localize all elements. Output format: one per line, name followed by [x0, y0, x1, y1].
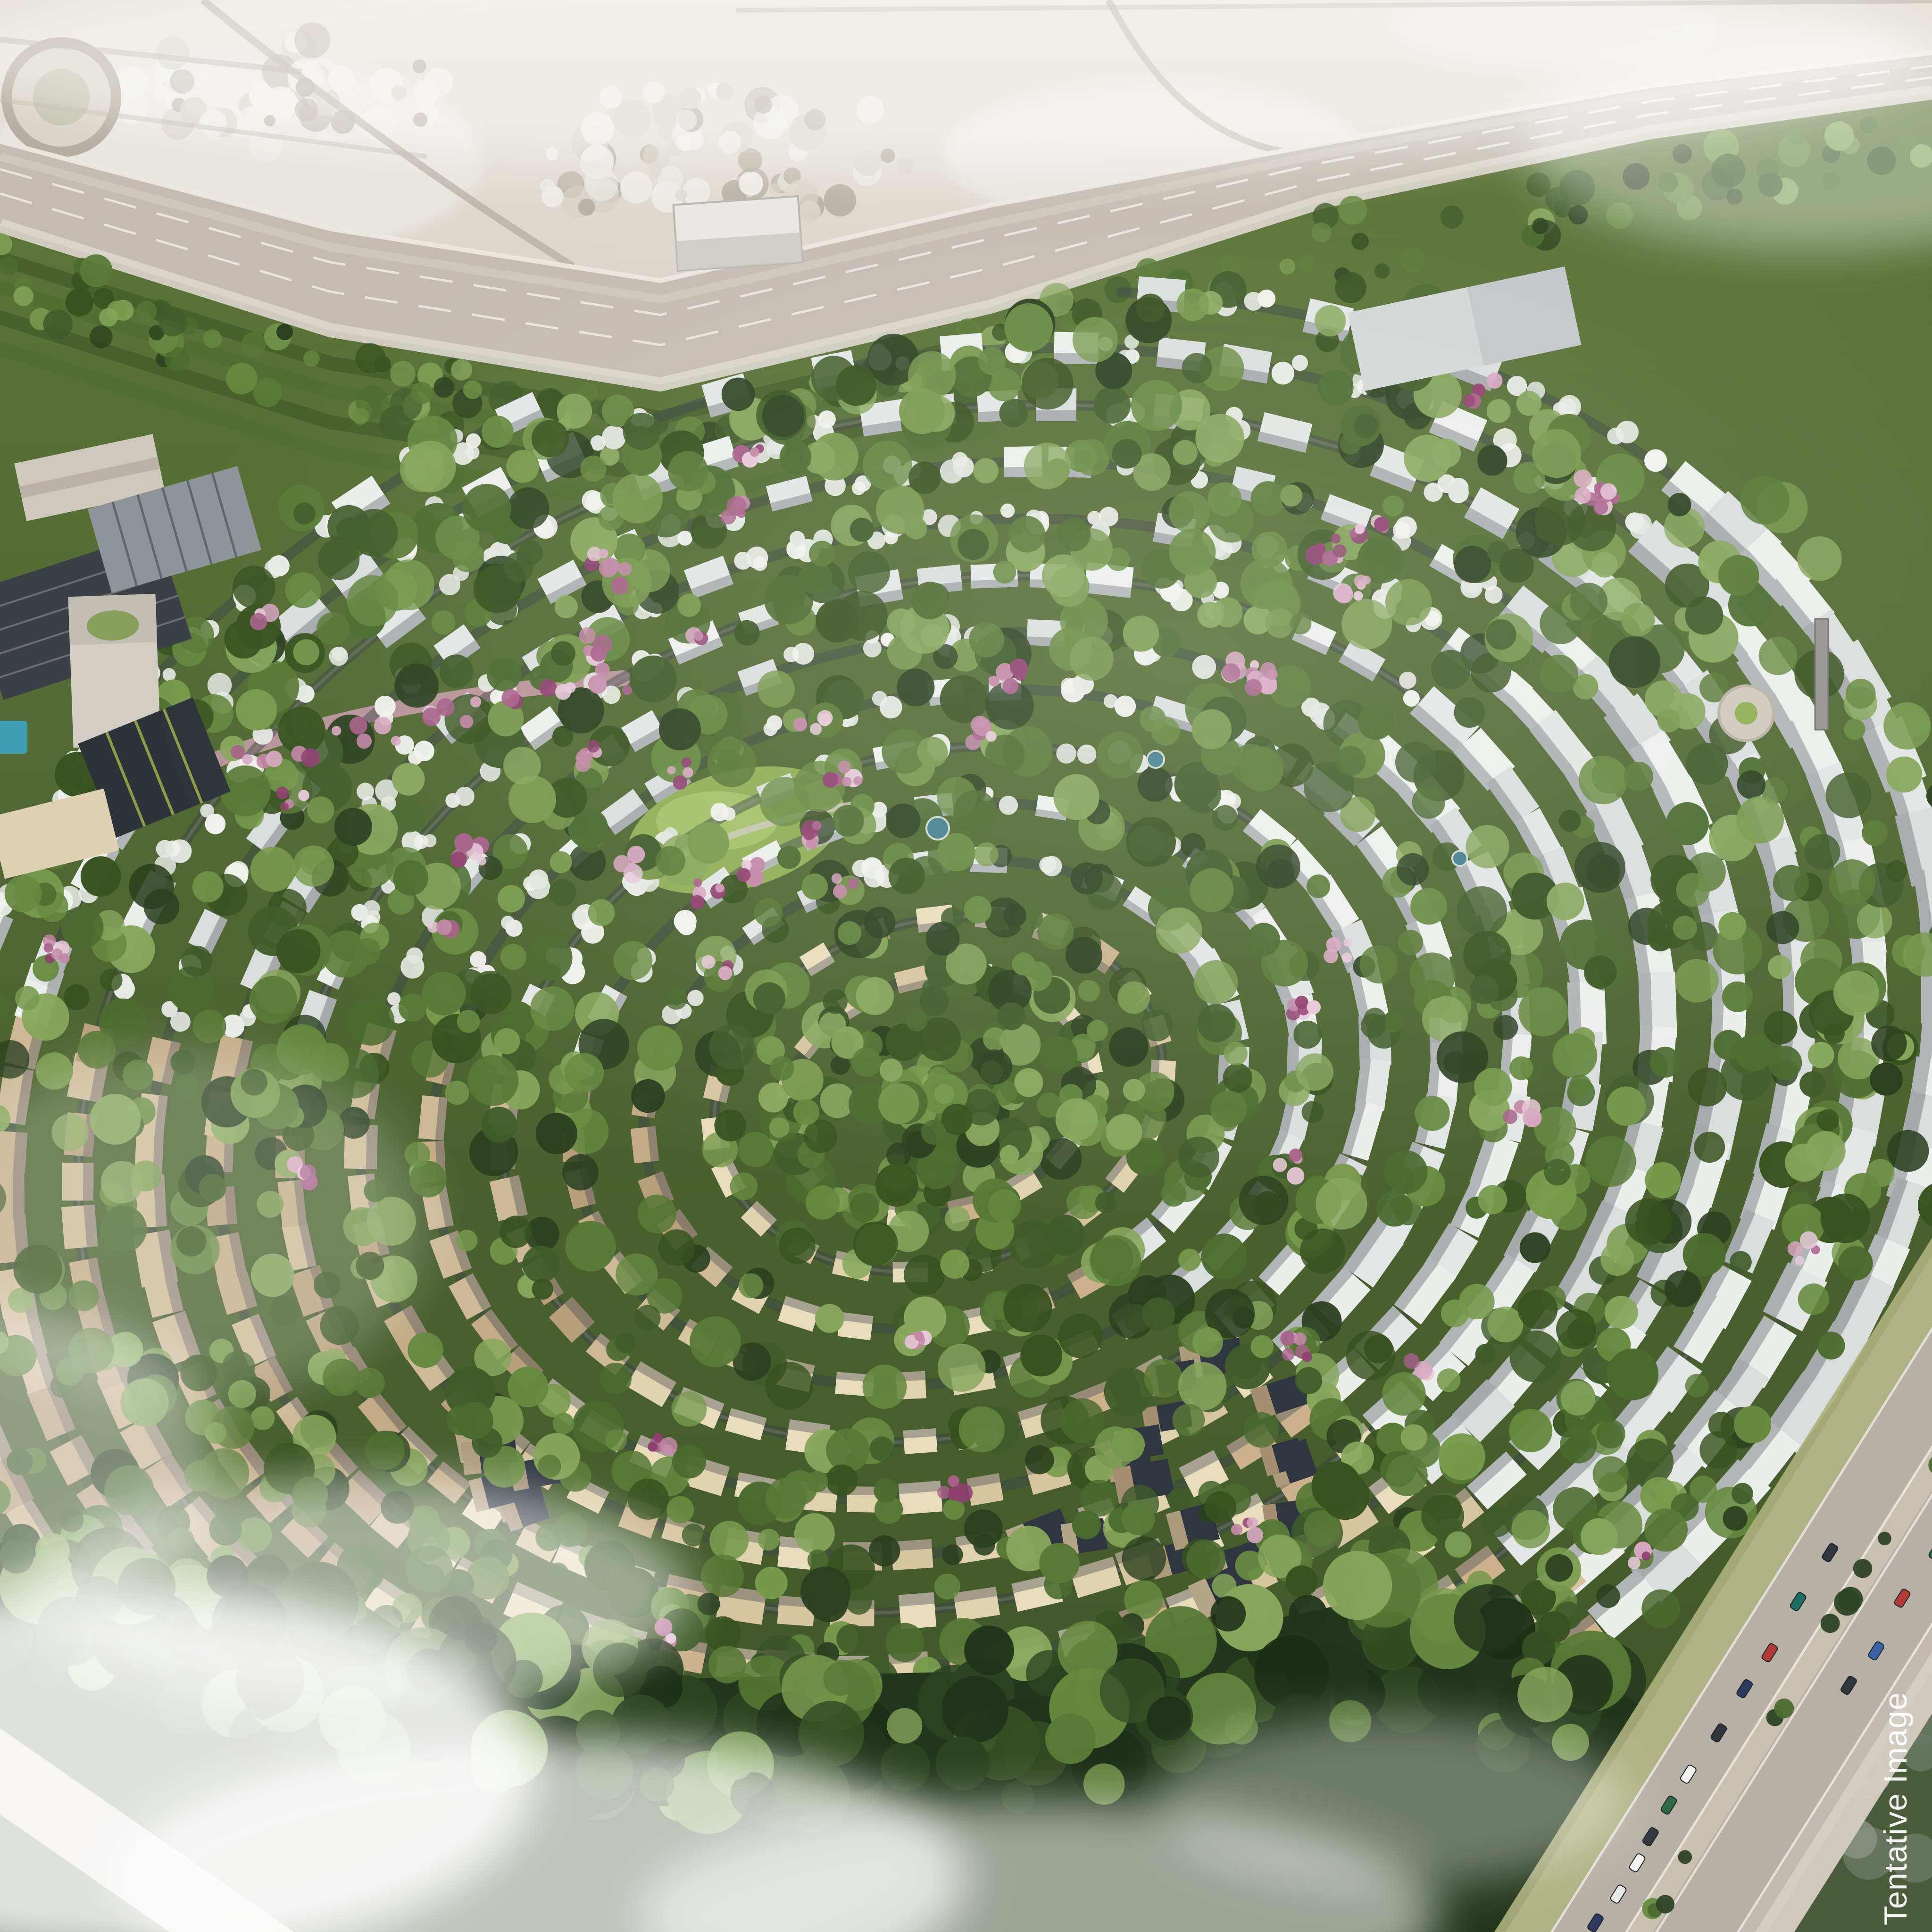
tree: [885, 1623, 924, 1662]
pink-blossom-tree: [1788, 1241, 1803, 1257]
tree: [1243, 1412, 1279, 1448]
forest-tree: [1184, 1673, 1256, 1744]
hedge-tree: [276, 324, 293, 340]
pink-blossom-tree: [1800, 1231, 1818, 1249]
tree: [1509, 1409, 1552, 1452]
forest-tree: [799, 1701, 864, 1766]
tree: [959, 1407, 1005, 1452]
tree: [709, 1521, 749, 1560]
tree: [61, 906, 103, 949]
tree: [1386, 1455, 1428, 1496]
tree: [1009, 1220, 1058, 1269]
tree: [408, 1332, 443, 1368]
tree: [1734, 1406, 1771, 1443]
forest-tree: [1517, 1667, 1573, 1722]
tree: [869, 1437, 894, 1462]
blossom-row-tree: [170, 1012, 191, 1032]
tree: [538, 1455, 561, 1478]
tree: [365, 1431, 404, 1470]
pink-blossom-tree: [1231, 1524, 1242, 1535]
tree: [863, 1365, 907, 1409]
tree: [1785, 1143, 1823, 1182]
hedge-tree: [14, 286, 33, 306]
tree: [129, 864, 174, 909]
tree: [1641, 1590, 1680, 1628]
tree: [1439, 1433, 1485, 1480]
forest-tree: [1454, 1584, 1523, 1653]
pink-blossom-tree: [1293, 1332, 1307, 1346]
tree: [532, 1278, 553, 1299]
tree: [523, 1246, 560, 1283]
tree: [1020, 1335, 1062, 1377]
tree: [192, 1010, 226, 1043]
tree: [1699, 1431, 1737, 1469]
tree: [354, 1368, 384, 1398]
tree: [456, 1230, 477, 1251]
tree: [1178, 1362, 1227, 1411]
tree: [904, 1255, 945, 1296]
forest-tree: [1083, 1764, 1125, 1805]
tree: [1560, 1426, 1597, 1463]
forest-tree: [881, 1742, 930, 1791]
tree: [628, 1479, 669, 1520]
tree: [672, 1445, 706, 1479]
pink-blossom-tree: [1404, 1353, 1419, 1369]
forest-tree: [823, 1662, 857, 1696]
tree: [1597, 1584, 1620, 1608]
tree: [1144, 1359, 1183, 1398]
tree: [1732, 1483, 1753, 1505]
tree: [1645, 1162, 1681, 1198]
pink-blossom-tree: [950, 1486, 964, 1499]
tree: [1201, 1233, 1247, 1279]
tree: [1520, 1232, 1550, 1263]
tree: [1596, 1419, 1625, 1448]
tree: [64, 984, 90, 1010]
tree: [1798, 1283, 1829, 1315]
forest-tree: [942, 1676, 1008, 1742]
tree: [1192, 1327, 1223, 1358]
tree: [1887, 1130, 1929, 1172]
tree: [1556, 1309, 1596, 1349]
tree: [1625, 1198, 1672, 1245]
tree: [1382, 1372, 1425, 1416]
tree: [600, 1363, 632, 1395]
tree: [826, 1465, 858, 1496]
tree: [1723, 1506, 1747, 1531]
tree: [1600, 1242, 1634, 1276]
hedge-tree: [99, 308, 117, 326]
tree: [605, 1429, 627, 1451]
tree: [1817, 1332, 1845, 1359]
tree: [1512, 1510, 1550, 1548]
median-shrub: [1774, 1699, 1794, 1718]
hedge-tree: [158, 308, 187, 337]
tree: [853, 1222, 898, 1266]
tree: [1518, 1290, 1557, 1329]
hedge-tree: [90, 325, 112, 348]
forest-tree: [1147, 1696, 1191, 1740]
tree: [1081, 1480, 1117, 1516]
tree: [1178, 1249, 1201, 1271]
tree: [249, 976, 297, 1024]
tree: [1683, 1233, 1726, 1276]
tree: [1142, 1298, 1175, 1331]
hedge-tree: [43, 309, 73, 339]
tree: [1581, 1518, 1617, 1555]
tree: [1545, 1554, 1573, 1582]
tree: [1058, 1314, 1102, 1358]
tree: [809, 1583, 849, 1623]
tree: [766, 1478, 807, 1519]
pink-blossom-tree: [1641, 1551, 1650, 1560]
tree: [1459, 1284, 1494, 1319]
tree: [807, 1471, 828, 1492]
tree: [1124, 1581, 1163, 1619]
tree: [940, 1249, 969, 1279]
tree: [638, 1195, 676, 1233]
tree: [1685, 1374, 1709, 1398]
tree: [1167, 1488, 1190, 1511]
hedge-tree: [80, 254, 113, 287]
tree: [758, 1529, 780, 1550]
tree: [81, 856, 121, 897]
tree: [942, 1544, 963, 1565]
tree: [1644, 1508, 1688, 1552]
tree: [445, 1081, 469, 1105]
pink-blossom-tree: [1282, 1348, 1295, 1361]
tree: [794, 1513, 835, 1554]
pink-blossom-tree: [1247, 1527, 1263, 1543]
tree: [553, 1413, 575, 1434]
tree: [481, 1107, 516, 1142]
tree: [1509, 1331, 1561, 1382]
pink-blossom-tree: [44, 943, 53, 953]
tree: [1122, 1536, 1166, 1580]
tree: [826, 1429, 869, 1472]
tree: [1122, 1502, 1155, 1535]
tree: [1665, 1270, 1702, 1307]
tree: [1286, 1566, 1318, 1598]
tree: [701, 1554, 744, 1597]
tree: [1003, 1283, 1052, 1332]
tree: [964, 1509, 1003, 1548]
tree: [500, 1216, 532, 1248]
tree: [1605, 1296, 1638, 1329]
tree: [666, 1496, 694, 1524]
hedge-tree: [0, 256, 18, 275]
tree: [658, 1229, 695, 1266]
forest-tree: [964, 1625, 1014, 1675]
tree: [1186, 1540, 1225, 1579]
pink-blossom-tree: [1280, 1331, 1295, 1346]
tree: [1346, 1331, 1395, 1380]
tree: [1233, 1307, 1255, 1329]
tree: [634, 1305, 661, 1332]
pink-blossom-tree: [1302, 1352, 1312, 1362]
forest-tree: [887, 1708, 922, 1743]
tree: [1295, 1367, 1322, 1394]
tree: [739, 1273, 764, 1298]
tree: [562, 1154, 599, 1191]
tree: [1839, 1246, 1873, 1281]
tree: [100, 969, 123, 991]
tree: [1607, 1349, 1659, 1400]
hedge-tree: [226, 363, 258, 394]
tree: [766, 1362, 813, 1409]
pink-blossom-tree: [915, 1332, 924, 1341]
tree: [15, 986, 40, 1010]
tree: [1321, 1472, 1369, 1520]
hedge-tree: [241, 332, 266, 356]
median-shrub: [1853, 1559, 1872, 1578]
tree: [5, 875, 42, 913]
tree: [1816, 1109, 1839, 1131]
swimming-pool: [0, 721, 27, 754]
tree: [1025, 1445, 1054, 1474]
pink-blossom-tree: [1247, 1517, 1258, 1529]
mist-patch: [1156, 1717, 1627, 1887]
tree: [181, 946, 212, 976]
tree: [690, 1316, 741, 1367]
tree: [874, 1479, 898, 1503]
tentative-image-watermark: Tentative Image: [1878, 1692, 1914, 1925]
median-shrub: [1838, 1587, 1863, 1611]
tree: [615, 1332, 636, 1353]
tree: [755, 1567, 788, 1599]
tree: [1730, 1251, 1752, 1273]
tree: [1090, 1235, 1141, 1286]
forest-tree: [936, 1737, 990, 1790]
tree: [565, 1221, 616, 1271]
tree: [1251, 1335, 1274, 1358]
tree: [697, 1593, 720, 1616]
tree: [1821, 1193, 1870, 1243]
pink-blossom-tree: [1628, 1557, 1641, 1569]
tree: [1094, 1426, 1136, 1468]
tree: [1593, 1456, 1629, 1492]
pink-blossom-tree: [1795, 1256, 1804, 1265]
tree: [1445, 1531, 1472, 1557]
tree: [1437, 1368, 1460, 1392]
tree: [251, 1406, 275, 1430]
tree: [779, 1228, 815, 1264]
rock-outcrop: [541, 185, 563, 207]
forest-tree: [1289, 1595, 1327, 1633]
aerial-render-scene: Tentative Image: [0, 0, 1932, 1932]
hedge-tree: [203, 329, 222, 348]
tree: [536, 1113, 577, 1154]
tree: [1401, 1424, 1427, 1450]
tree: [815, 1304, 844, 1332]
pink-blossom-tree: [648, 1442, 658, 1452]
pink-blossom-tree: [659, 1437, 677, 1455]
median-shrub: [1656, 1895, 1674, 1913]
tree: [1039, 1543, 1080, 1583]
tree: [934, 1574, 960, 1599]
tree: [869, 1535, 900, 1566]
tree: [456, 1402, 493, 1440]
tree: [682, 1524, 705, 1546]
tree: [1626, 1438, 1674, 1485]
tree: [1204, 1491, 1236, 1524]
tree: [730, 1173, 758, 1200]
forest-tree: [1323, 1551, 1392, 1620]
tree: [1172, 1404, 1205, 1436]
tree: [836, 1624, 866, 1654]
tree: [1487, 1307, 1523, 1342]
pink-blossom-tree: [948, 1475, 959, 1487]
tree: [938, 1344, 986, 1392]
tree: [1560, 1381, 1595, 1416]
tree: [1475, 1344, 1497, 1365]
median-shrub: [1678, 1850, 1692, 1864]
tree: [192, 871, 224, 902]
hedge-tree: [136, 301, 157, 322]
hedge-tree: [66, 288, 93, 316]
forest-tree: [1210, 1596, 1246, 1632]
pink-blossom-tree: [51, 949, 63, 960]
screenshot-root: Tentative Image: [0, 0, 1932, 1932]
median-shrub: [1821, 1614, 1840, 1633]
forest-tree: [1045, 1714, 1096, 1764]
tree: [671, 1391, 707, 1427]
median-shrub: [1878, 1532, 1891, 1545]
